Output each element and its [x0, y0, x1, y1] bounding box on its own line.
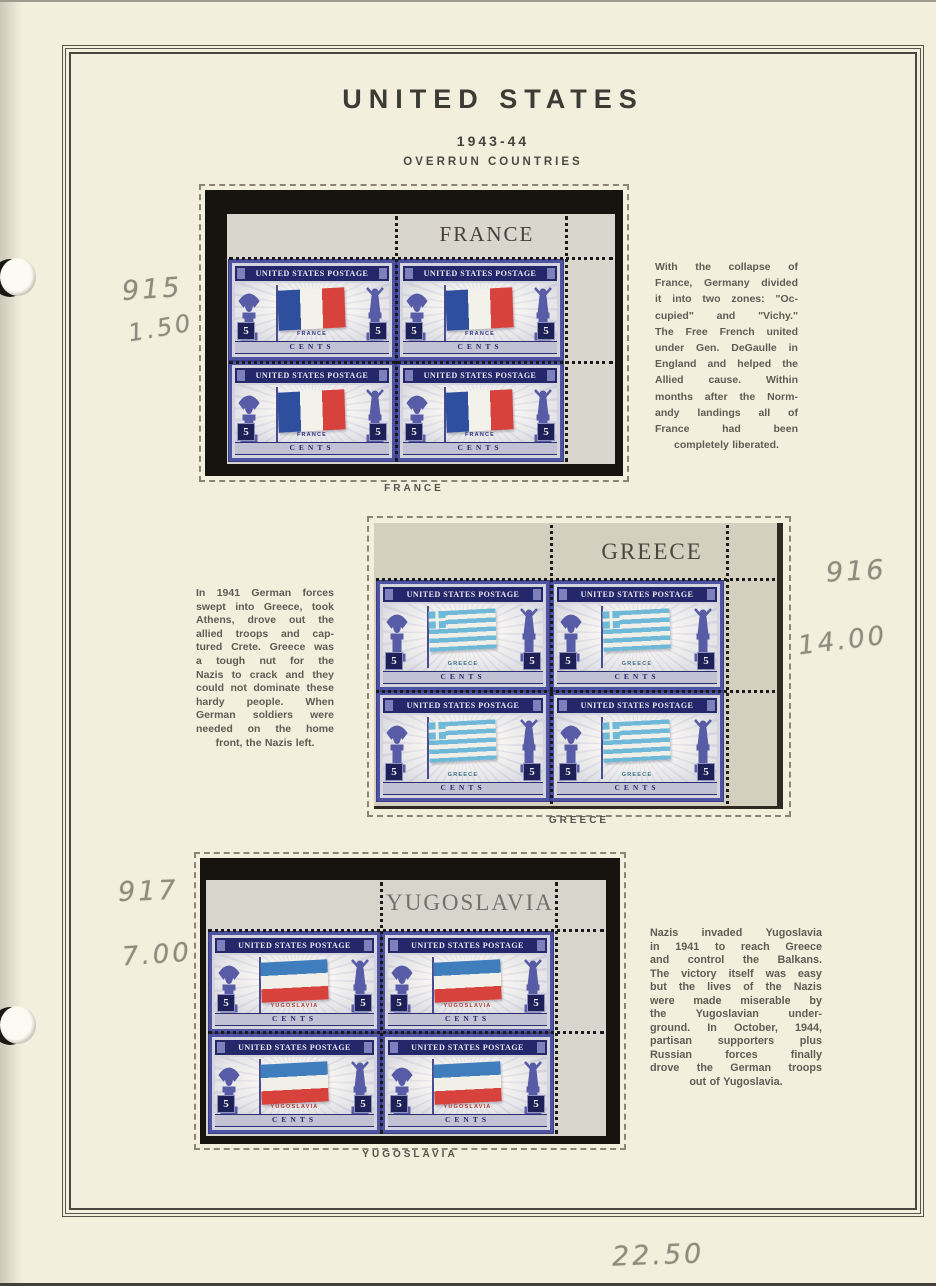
description-line: in1941toreachGreece — [650, 941, 822, 955]
stamp-vignette: GREECE 5 5 — [557, 715, 717, 782]
handwritten-catalog-number: 915 — [121, 272, 184, 307]
stamp-header-text: UNITED STATES POSTAGE — [215, 1040, 374, 1055]
stamp-sheet: FRANCE UNITED STATES POSTAGE — [227, 214, 615, 464]
stamp-header-text: UNITED STATES POSTAGE — [557, 587, 717, 602]
description-line: couldnotdominatethese — [196, 682, 334, 696]
stamp: UNITED STATES POSTAGE — [376, 580, 550, 691]
cents-label: CENTS — [403, 442, 557, 455]
description-line: andylandingsallof — [655, 407, 798, 423]
denomination-left: 5 — [238, 323, 254, 339]
page-title: UNITED STATES — [62, 84, 924, 115]
selvage-label-france: FRANCE — [398, 222, 576, 247]
flag — [428, 719, 496, 762]
handwritten-catalog-number: 916 — [825, 554, 887, 588]
flag — [277, 389, 345, 432]
stamp-country-label: YUGOSLAVIA — [244, 1003, 346, 1009]
denomination-left: 5 — [391, 1096, 407, 1112]
stamp-vignette: YUGOSLAVIA 5 5 — [215, 1057, 374, 1115]
stamp: UNITED STATES POSTAGE — [228, 259, 396, 361]
perforation-line — [555, 882, 558, 1134]
stamp-country-label: FRANCE — [431, 331, 530, 337]
stamp: UNITED STATES POSTAGE — [550, 691, 724, 802]
description-line: itintotwozones:"Oc- — [655, 293, 798, 309]
denomination-right: 5 — [524, 764, 540, 780]
stamp-vignette: YUGOSLAVIA 5 5 — [388, 1057, 547, 1115]
description-line: Withthecollapseof — [655, 261, 798, 277]
perforation-line — [565, 216, 568, 462]
scan-top-edge — [0, 0, 936, 2]
description-line: atoughnutforthe — [196, 655, 334, 669]
perforation-line — [376, 578, 775, 581]
stamp-country-label: GREECE — [586, 661, 688, 667]
denomination-left: 5 — [391, 995, 407, 1011]
description-line: ground.InOctober,1944, — [650, 1022, 822, 1036]
perforation-line — [208, 1031, 604, 1034]
stamp-header-text: UNITED STATES POSTAGE — [388, 1040, 547, 1055]
stamp: UNITED STATES POSTAGE — [208, 931, 381, 1033]
stamp-paper: UNITED STATES POSTAGE — [380, 695, 546, 798]
description-line: outofYugoslavia. — [650, 1076, 822, 1090]
description-line: neededonthehome — [196, 723, 334, 737]
cents-label: CENTS — [557, 671, 717, 684]
flag-canton-cross — [602, 611, 620, 629]
cents-label: CENTS — [235, 341, 389, 354]
denomination-right: 5 — [355, 1096, 371, 1112]
cents-label: CENTS — [235, 442, 389, 455]
flag-canton-cross — [602, 722, 620, 740]
stamp-header-text: UNITED STATES POSTAGE — [403, 368, 557, 383]
denomination-left: 5 — [218, 995, 234, 1011]
denomination-right: 5 — [538, 323, 554, 339]
description-line: Nazistocrackandthey — [196, 669, 334, 683]
stamp: UNITED STATES POSTAGE — [396, 259, 564, 361]
denomination-left: 5 — [386, 764, 402, 780]
perforation-line — [550, 525, 553, 804]
flag — [602, 719, 670, 762]
denomination-right: 5 — [698, 653, 714, 669]
description-line: theYugoslavianunder- — [650, 1008, 822, 1022]
stamp-header-text: UNITED STATES POSTAGE — [235, 266, 389, 281]
series-year: 1943-44 — [62, 133, 924, 149]
cents-label: CENTS — [215, 1013, 374, 1026]
stamp-country-label: FRANCE — [263, 331, 362, 337]
denomination-right: 5 — [370, 323, 386, 339]
stamp-paper: UNITED STATES POSTAGE — [380, 584, 546, 687]
perforation-line — [229, 361, 613, 364]
description-line: alliedtroopsandcap- — [196, 628, 334, 642]
stamp-country-label: YUGOSLAVIA — [417, 1003, 519, 1009]
denomination-right: 5 — [524, 653, 540, 669]
stamp-vignette: FRANCE 5 5 — [403, 385, 557, 443]
denomination-left: 5 — [406, 323, 422, 339]
description-line: France,Germanydivided — [655, 277, 798, 293]
series-name: OVERRUN COUNTRIES — [62, 156, 924, 168]
denomination-left: 5 — [218, 1096, 234, 1112]
description-line: completelyliberated. — [655, 439, 798, 455]
description-line: underGen.DeGaullein — [655, 342, 798, 358]
denomination-left: 5 — [560, 764, 576, 780]
description-line: Englandandhelpedthe — [655, 358, 798, 374]
description-line: partisansupportersplus — [650, 1035, 822, 1049]
flag — [445, 287, 513, 330]
description-line: hardypeople.When — [196, 696, 334, 710]
stamp-header-text: UNITED STATES POSTAGE — [235, 368, 389, 383]
block-caption-yugoslavia: YUGOSLAVIA — [200, 1149, 620, 1160]
stamp: UNITED STATES POSTAGE — [396, 361, 564, 463]
stamp-country-label: FRANCE — [431, 432, 530, 438]
cents-label: CENTS — [388, 1114, 547, 1127]
description-greece: In1941GermanforcessweptintoGreece,tookAt… — [196, 587, 334, 750]
description-line: monthsaftertheNorm- — [655, 391, 798, 407]
stamp-vignette: YUGOSLAVIA 5 5 — [215, 955, 374, 1013]
flag — [428, 608, 496, 651]
description-line: drovetheGermantroops — [650, 1062, 822, 1076]
description-line: butthelivesoftheNazis — [650, 981, 822, 995]
flag-canton-cross — [428, 611, 446, 629]
stamp: UNITED STATES POSTAGE — [381, 1033, 554, 1135]
stamp-sheet: YUGOSLAVIA UNITED STATES POSTAGE — [206, 880, 606, 1136]
denomination-left: 5 — [406, 424, 422, 440]
stamp: UNITED STATES POSTAGE — [381, 931, 554, 1033]
handwritten-total: 22.50 — [611, 1238, 704, 1272]
description-line: TheFreeFrenchunited — [655, 326, 798, 342]
description-line: NazisinvadedYugoslavia — [650, 927, 822, 941]
handwritten-catalog-number: 917 — [117, 875, 179, 908]
stamp-header-text: UNITED STATES POSTAGE — [388, 938, 547, 953]
cents-label: CENTS — [403, 341, 557, 354]
stamp-header-text: UNITED STATES POSTAGE — [383, 587, 543, 602]
description-france: WiththecollapseofFrance,Germanydividedit… — [655, 261, 798, 455]
punch-hole — [0, 258, 36, 298]
cents-label: CENTS — [215, 1114, 374, 1127]
denomination-left: 5 — [386, 653, 402, 669]
denomination-right: 5 — [698, 764, 714, 780]
stamp: UNITED STATES POSTAGE — [376, 691, 550, 802]
stamp-paper: UNITED STATES POSTAGE — [232, 263, 392, 357]
perforation-line — [376, 690, 775, 693]
description-line: front,theNazisleft. — [196, 737, 334, 751]
denomination-left: 5 — [238, 424, 254, 440]
stamp-paper: UNITED STATES POSTAGE — [212, 1037, 377, 1131]
stamp-vignette: FRANCE 5 5 — [235, 385, 389, 443]
flag — [260, 959, 328, 1002]
plate-block-yugoslavia: YUGOSLAVIA UNITED STATES POSTAGE — [200, 858, 620, 1144]
denomination-left: 5 — [560, 653, 576, 669]
stamp-country-label: GREECE — [412, 661, 514, 667]
description-line: cupied"and"Vichy." — [655, 310, 798, 326]
stamp-paper: UNITED STATES POSTAGE — [400, 263, 560, 357]
selvage-label-yugoslavia: YUGOSLAVIA — [366, 890, 574, 916]
description-line: Alliedcause.Within — [655, 374, 798, 390]
description-line: Russianforcesfinally — [650, 1049, 822, 1063]
perforation-line — [395, 216, 398, 462]
stamp-paper: UNITED STATES POSTAGE — [385, 935, 550, 1029]
punch-hole — [0, 1006, 36, 1046]
stamp-sheet: GREECE UNITED STATES POSTAGE — [374, 523, 783, 809]
stamp-header-text: UNITED STATES POSTAGE — [403, 266, 557, 281]
stamp-vignette: FRANCE 5 5 — [235, 283, 389, 341]
stamp-country-label: GREECE — [586, 772, 688, 778]
description-line: In1941Germanforces — [196, 587, 334, 601]
stamp-header-text: UNITED STATES POSTAGE — [557, 698, 717, 713]
flag — [445, 389, 513, 432]
description-line: Thevictoryitselfwaseasy — [650, 968, 822, 982]
plate-block-france: FRANCE UNITED STATES POSTAGE — [205, 190, 623, 476]
perforation-line — [208, 929, 604, 932]
stamp-paper: UNITED STATES POSTAGE — [385, 1037, 550, 1131]
stamp-paper: UNITED STATES POSTAGE — [212, 935, 377, 1029]
stamp-country-label: FRANCE — [263, 432, 362, 438]
flag-canton-cross — [428, 722, 446, 740]
cents-label: CENTS — [383, 782, 543, 795]
flag — [277, 287, 345, 330]
stamp: UNITED STATES POSTAGE — [228, 361, 396, 463]
description-line: Athens,droveoutthe — [196, 614, 334, 628]
stamp-country-label: YUGOSLAVIA — [417, 1104, 519, 1110]
stamp-country-label: GREECE — [412, 772, 514, 778]
stamp-country-label: YUGOSLAVIA — [244, 1104, 346, 1110]
stamp-header-text: UNITED STATES POSTAGE — [383, 698, 543, 713]
denomination-right: 5 — [528, 1096, 544, 1112]
stamp-vignette: YUGOSLAVIA 5 5 — [388, 955, 547, 1013]
flag — [260, 1061, 328, 1104]
stamp-vignette: GREECE 5 5 — [383, 604, 543, 671]
perforation-line — [726, 525, 729, 804]
plate-block-greece: GREECE UNITED STATES POSTAGE — [374, 523, 784, 810]
flag — [602, 608, 670, 651]
description-line: Francehadbeen — [655, 423, 798, 439]
stamp-vignette: GREECE 5 5 — [557, 604, 717, 671]
scan-left-shadow — [0, 0, 22, 1286]
description-line: turedCrete.Greecewas — [196, 641, 334, 655]
denomination-right: 5 — [538, 424, 554, 440]
stamp-vignette: FRANCE 5 5 — [403, 283, 557, 341]
perforation-line — [229, 257, 613, 260]
cents-label: CENTS — [383, 671, 543, 684]
block-caption-greece: GREECE — [374, 815, 784, 826]
selvage-label-greece: GREECE — [559, 539, 744, 565]
handwritten-price: 7.00 — [121, 938, 193, 973]
description-yugoslavia: NazisinvadedYugoslaviain1941toreachGreec… — [650, 927, 822, 1089]
cents-label: CENTS — [388, 1013, 547, 1026]
stamp-paper: UNITED STATES POSTAGE — [232, 365, 392, 459]
stamp: UNITED STATES POSTAGE — [208, 1033, 381, 1135]
cents-label: CENTS — [557, 782, 717, 795]
perforation-line — [380, 882, 383, 1134]
flag — [433, 1061, 501, 1104]
stamp-paper: UNITED STATES POSTAGE — [554, 584, 720, 687]
denomination-right: 5 — [355, 995, 371, 1011]
denomination-right: 5 — [528, 995, 544, 1011]
description-line: sweptintoGreece,took — [196, 601, 334, 615]
stamp-paper: UNITED STATES POSTAGE — [400, 365, 560, 459]
stamp-header-text: UNITED STATES POSTAGE — [215, 938, 374, 953]
stamp-vignette: GREECE 5 5 — [383, 715, 543, 782]
stamp: UNITED STATES POSTAGE — [550, 580, 724, 691]
block-caption-france: FRANCE — [205, 483, 623, 494]
description-line: weremademiserableby — [650, 995, 822, 1009]
description-line: andcontroltheBalkans. — [650, 954, 822, 968]
flag — [433, 959, 501, 1002]
description-line: Germansoldierswere — [196, 709, 334, 723]
stamp-paper: UNITED STATES POSTAGE — [554, 695, 720, 798]
denomination-right: 5 — [370, 424, 386, 440]
